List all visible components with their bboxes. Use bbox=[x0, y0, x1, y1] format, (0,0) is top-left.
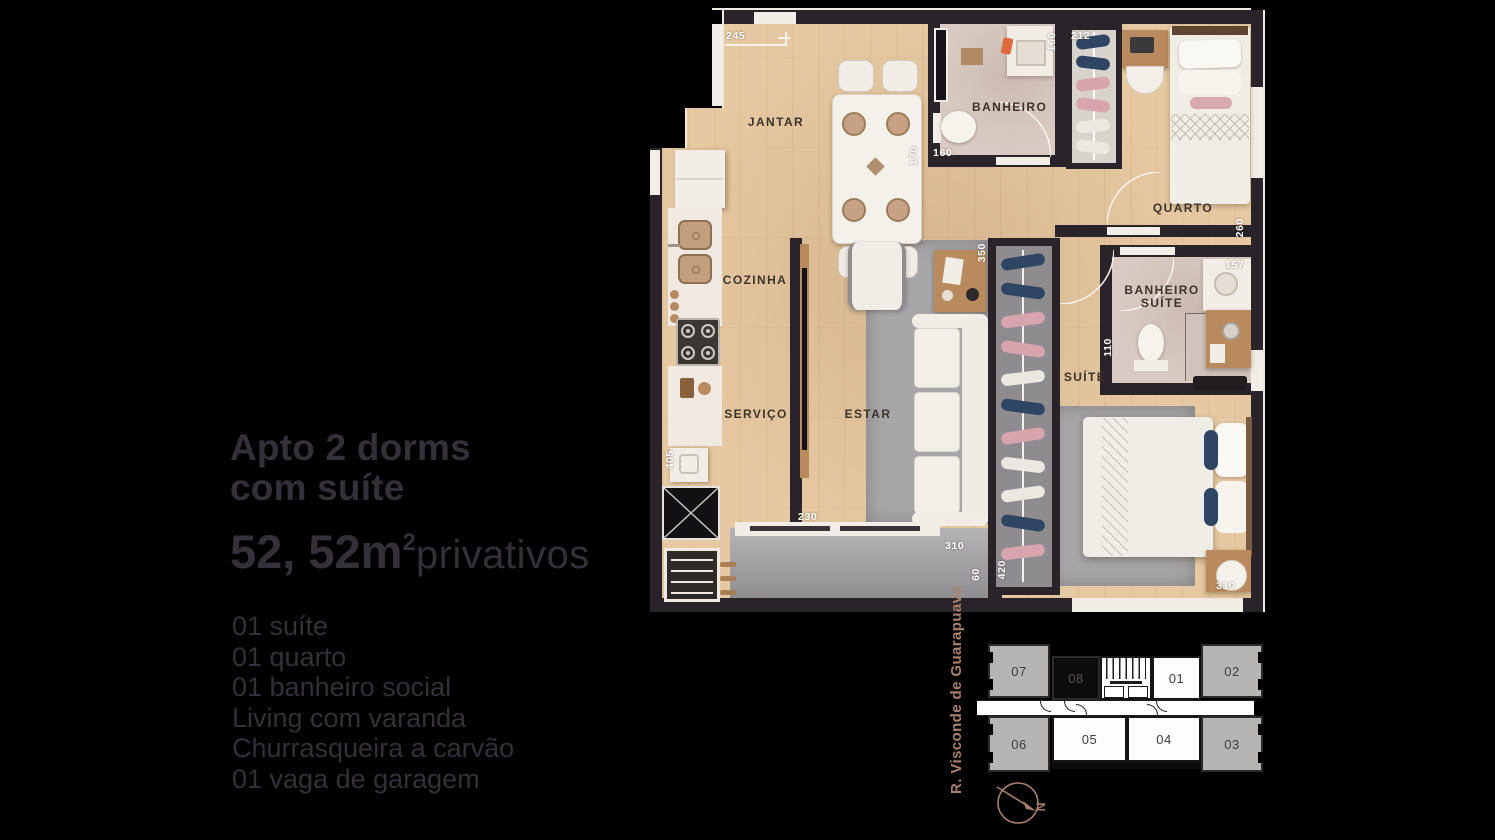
shower-glass bbox=[934, 28, 948, 102]
burner bbox=[701, 346, 715, 360]
dim-line bbox=[725, 44, 787, 46]
dim-405: 405 bbox=[664, 450, 676, 469]
place-setting bbox=[842, 198, 866, 222]
key-corridor bbox=[977, 700, 1254, 716]
room-label-cozinha: COZINHA bbox=[720, 274, 790, 287]
room-label-banheiro-suite: BANHEIRO SUÍTE bbox=[1118, 284, 1206, 310]
counter-jar bbox=[670, 302, 679, 311]
feature-list: 01 suíte 01 quarto 01 banheiro social Li… bbox=[232, 611, 514, 794]
wing-notch bbox=[988, 724, 993, 735]
garment bbox=[1000, 398, 1045, 416]
counter-lower bbox=[668, 366, 722, 446]
tv-screen bbox=[802, 268, 807, 450]
room-label-servico: SERVIÇO bbox=[722, 408, 790, 421]
key-south-wall bbox=[1052, 762, 1201, 769]
table-book bbox=[942, 257, 963, 285]
unit-number: 07 bbox=[1011, 664, 1026, 679]
dining-chair bbox=[882, 60, 918, 92]
north-label: N bbox=[1033, 803, 1047, 812]
wing-notch bbox=[1258, 724, 1263, 735]
place-setting bbox=[842, 112, 866, 136]
wing-notch bbox=[1258, 652, 1263, 663]
dim-tick bbox=[785, 32, 787, 46]
wing-notch bbox=[1258, 752, 1263, 763]
armchair bbox=[848, 242, 906, 310]
sofa-seat bbox=[914, 456, 960, 514]
dim-212: 212 bbox=[1071, 30, 1090, 42]
pillow bbox=[1215, 423, 1249, 477]
garment bbox=[1075, 97, 1110, 114]
dim-60: 60 bbox=[970, 568, 982, 581]
window bbox=[650, 150, 660, 195]
faucet bbox=[668, 244, 680, 247]
toilet-bowl bbox=[1138, 324, 1164, 362]
garment bbox=[1075, 76, 1110, 92]
counter-jar bbox=[670, 290, 679, 299]
corridor-door-arc bbox=[1076, 704, 1087, 715]
stairs-hatch bbox=[1106, 658, 1146, 679]
burner bbox=[701, 324, 715, 338]
unit-number: 04 bbox=[1156, 732, 1171, 747]
apartment-title: Apto 2 dorms com suíte bbox=[230, 428, 471, 508]
laptop bbox=[1130, 37, 1154, 53]
skewer-handle bbox=[720, 590, 736, 595]
sink-bowl bbox=[1016, 40, 1046, 66]
key-unit-05: 05 bbox=[1052, 716, 1127, 762]
unit-number: 05 bbox=[1082, 732, 1097, 747]
pillow bbox=[1215, 481, 1249, 533]
dim-245: 245 bbox=[726, 30, 745, 42]
dim-350: 350 bbox=[976, 243, 988, 262]
dim-160-banheiro-depth: 160 bbox=[1046, 32, 1058, 51]
skewer-handle bbox=[720, 576, 736, 581]
entry-door bbox=[754, 12, 796, 24]
toilet-tank bbox=[1134, 360, 1168, 371]
dim-170: 170 bbox=[908, 146, 920, 165]
area-exponent: 2 bbox=[402, 529, 415, 556]
kettle bbox=[698, 382, 711, 395]
duvet-hatch bbox=[1171, 114, 1249, 140]
garment bbox=[1000, 282, 1045, 300]
dim-160-banheiro-width: 160 bbox=[933, 147, 952, 159]
pillow bbox=[1179, 69, 1241, 94]
washer-door bbox=[679, 454, 699, 474]
window bbox=[1251, 85, 1263, 180]
feature-item: Churrasqueira a carvão bbox=[232, 733, 514, 764]
room-label-jantar: JANTAR bbox=[738, 116, 814, 129]
garment bbox=[1000, 485, 1045, 503]
key-unit-01: 01 bbox=[1152, 656, 1201, 700]
garment bbox=[1000, 427, 1045, 446]
shaft-x bbox=[664, 488, 718, 538]
wall-left bbox=[650, 148, 662, 612]
pillow bbox=[1179, 39, 1242, 69]
feature-item: 01 suíte bbox=[232, 611, 514, 642]
grill-grate bbox=[671, 556, 713, 594]
garment bbox=[1000, 369, 1045, 386]
room-label-quarto: QUARTO bbox=[1148, 202, 1218, 215]
facade-notch bbox=[650, 108, 687, 148]
toilet-bowl bbox=[941, 111, 976, 143]
wing-notch bbox=[988, 679, 993, 690]
coffee-machine bbox=[680, 378, 694, 398]
garment bbox=[1075, 139, 1110, 155]
stair-rail bbox=[1110, 681, 1142, 684]
headboard bbox=[1246, 417, 1252, 557]
fridge-door-line bbox=[677, 178, 723, 180]
unit-number: 01 bbox=[1169, 671, 1184, 686]
unit-number: 02 bbox=[1224, 664, 1239, 679]
room-label-suite: SUÍTE bbox=[1058, 371, 1112, 384]
corridor-door-arc bbox=[1064, 701, 1075, 712]
corridor-door-arc bbox=[1147, 704, 1158, 715]
garment bbox=[1075, 55, 1110, 71]
sliding-glass bbox=[750, 526, 830, 531]
dim-310-suite: 310 bbox=[1216, 580, 1235, 592]
basin-drain bbox=[692, 232, 700, 240]
area-suffix: privativos bbox=[416, 533, 590, 577]
area-number: 52, 52m bbox=[230, 525, 402, 578]
toilet-tank bbox=[933, 113, 941, 143]
banheiro-door bbox=[996, 157, 1050, 165]
elevator bbox=[1104, 686, 1124, 698]
garment bbox=[1000, 340, 1045, 359]
door-arc-suite bbox=[1060, 250, 1114, 304]
suite-garments bbox=[996, 246, 1052, 587]
corridor-door-arc bbox=[1156, 701, 1167, 712]
key-unit-07: 07 bbox=[988, 644, 1050, 698]
sink-bowl bbox=[1214, 272, 1238, 296]
garment bbox=[1000, 514, 1045, 533]
banheiro-suite-door bbox=[1120, 247, 1175, 255]
nightstand-phone bbox=[1210, 344, 1225, 363]
elevator bbox=[1128, 686, 1148, 698]
dim-tick bbox=[778, 37, 790, 39]
key-unit-06: 06 bbox=[988, 716, 1050, 772]
dim-310-varanda: 310 bbox=[945, 540, 964, 552]
corridor-door-arc bbox=[1040, 701, 1051, 712]
unit-number: 08 bbox=[1068, 671, 1083, 686]
bath-bench bbox=[1193, 376, 1247, 390]
plant-bowl bbox=[966, 288, 979, 301]
basin-drain bbox=[692, 266, 700, 274]
dim-260: 260 bbox=[1234, 218, 1246, 237]
wing-notch bbox=[1258, 679, 1263, 690]
pink-cushion bbox=[1190, 97, 1232, 109]
lamp bbox=[1222, 322, 1240, 340]
sofa-seat bbox=[914, 328, 960, 388]
skewer-handle bbox=[720, 562, 736, 567]
sofa-back bbox=[962, 318, 988, 526]
key-stair-core bbox=[1100, 656, 1152, 700]
dining-chair bbox=[838, 60, 874, 92]
door-arc-quarto bbox=[1107, 172, 1160, 225]
quarto-door bbox=[1107, 227, 1160, 235]
duvet-hatch bbox=[1102, 418, 1128, 556]
sofa-armrest bbox=[912, 512, 988, 526]
garment bbox=[1000, 253, 1045, 272]
feature-item: 01 vaga de garagem bbox=[232, 764, 514, 795]
street-label: R. Visconde de Guarapuava bbox=[948, 612, 982, 794]
dim-157: 157 bbox=[1225, 259, 1244, 271]
unit-number: 03 bbox=[1224, 737, 1239, 752]
navy-cushion bbox=[1204, 430, 1218, 470]
entry-jamb bbox=[712, 24, 722, 106]
feature-item: Living com varanda bbox=[232, 703, 514, 734]
burner bbox=[681, 346, 695, 360]
room-label-estar: ESTAR bbox=[838, 408, 898, 421]
feature-item: 01 banheiro social bbox=[232, 672, 514, 703]
garment bbox=[1000, 311, 1045, 329]
info-panel: Apto 2 dorms com suíte 52, 52m2privativo… bbox=[230, 428, 471, 508]
wing-notch bbox=[988, 752, 993, 763]
window bbox=[1251, 348, 1263, 393]
dim-110: 110 bbox=[1102, 338, 1114, 357]
dim-420: 420 bbox=[996, 560, 1008, 579]
key-unit-04: 04 bbox=[1127, 716, 1201, 762]
room-label-line: SUÍTE bbox=[1118, 297, 1206, 310]
private-area: 52, 52m2privativos bbox=[230, 524, 590, 579]
shower-head bbox=[961, 48, 983, 65]
navy-cushion bbox=[1204, 488, 1218, 526]
stage: Apto 2 dorms com suíte 52, 52m2privativo… bbox=[0, 0, 1495, 840]
wing-notch bbox=[988, 652, 993, 663]
floor-plan: JANTAR BANHEIRO QUARTO COZINHA SERVIÇO E… bbox=[650, 10, 1263, 612]
feature-item: 01 quarto bbox=[232, 642, 514, 673]
dim-230: 230 bbox=[798, 511, 817, 523]
quarto-garments bbox=[1072, 30, 1116, 163]
unit-number: 06 bbox=[1011, 737, 1026, 752]
key-unit-02: 02 bbox=[1201, 644, 1263, 698]
tray bbox=[942, 290, 953, 301]
garment bbox=[1075, 118, 1110, 133]
key-unit-08-highlighted: 08 bbox=[1052, 656, 1100, 700]
title-line-1: Apto 2 dorms bbox=[230, 428, 471, 468]
title-line-2: com suíte bbox=[230, 468, 471, 508]
key-unit-03: 03 bbox=[1201, 716, 1263, 772]
sofa-seat bbox=[914, 392, 960, 452]
place-setting bbox=[886, 198, 910, 222]
sliding-glass bbox=[840, 526, 920, 531]
place-setting bbox=[886, 112, 910, 136]
room-label-banheiro: BANHEIRO bbox=[972, 101, 1044, 114]
headboard bbox=[1172, 26, 1248, 35]
garment bbox=[1000, 456, 1045, 473]
burner bbox=[681, 324, 695, 338]
window bbox=[1070, 598, 1245, 612]
garment bbox=[1000, 543, 1045, 560]
